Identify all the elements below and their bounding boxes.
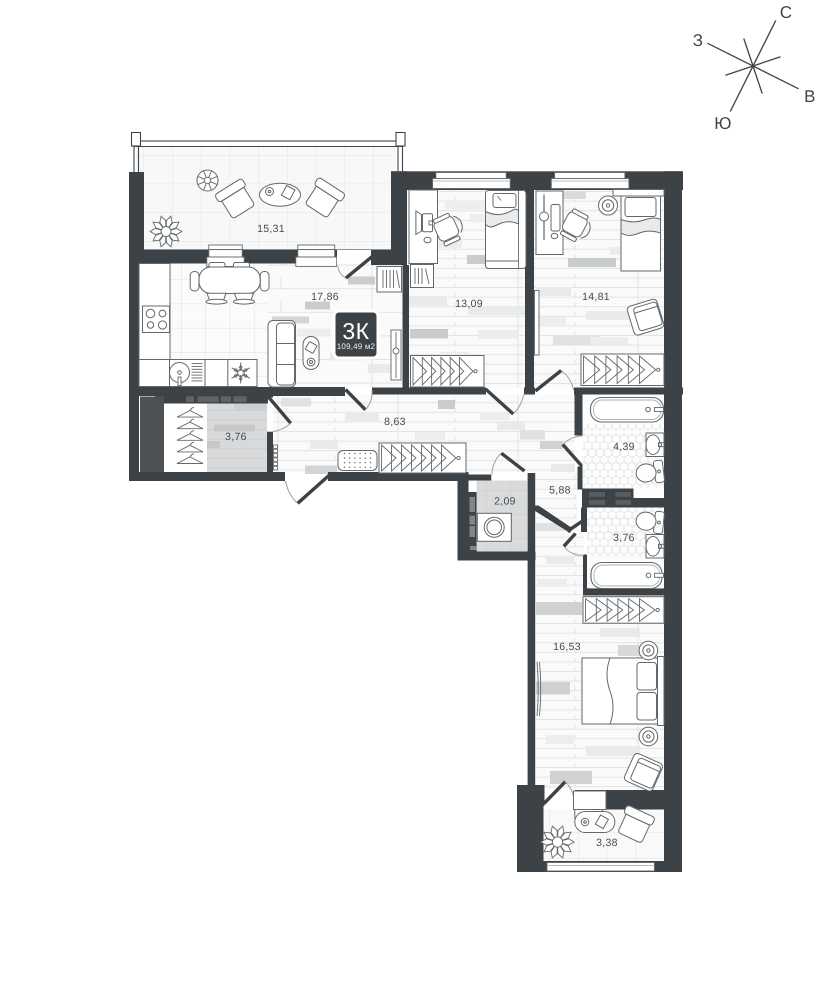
svg-text:В: В <box>804 87 816 106</box>
svg-text:8,63: 8,63 <box>384 416 406 428</box>
svg-text:14,81: 14,81 <box>582 291 610 303</box>
svg-text:4,39: 4,39 <box>613 441 635 453</box>
svg-text:3К: 3К <box>342 318 369 344</box>
svg-text:С: С <box>780 3 793 22</box>
svg-text:З: З <box>693 31 704 50</box>
svg-text:3,38: 3,38 <box>596 837 618 849</box>
svg-text:3,76: 3,76 <box>225 431 247 443</box>
svg-text:Ю: Ю <box>714 114 731 133</box>
svg-text:2,09: 2,09 <box>494 496 516 508</box>
svg-text:15,31: 15,31 <box>257 223 285 235</box>
svg-text:3,76: 3,76 <box>613 532 635 544</box>
svg-text:16,53: 16,53 <box>553 641 581 653</box>
svg-text:17,86: 17,86 <box>311 291 339 303</box>
svg-text:13,09: 13,09 <box>455 298 483 310</box>
svg-text:5,88: 5,88 <box>549 485 571 497</box>
svg-text:109,49 м2: 109,49 м2 <box>337 342 376 351</box>
